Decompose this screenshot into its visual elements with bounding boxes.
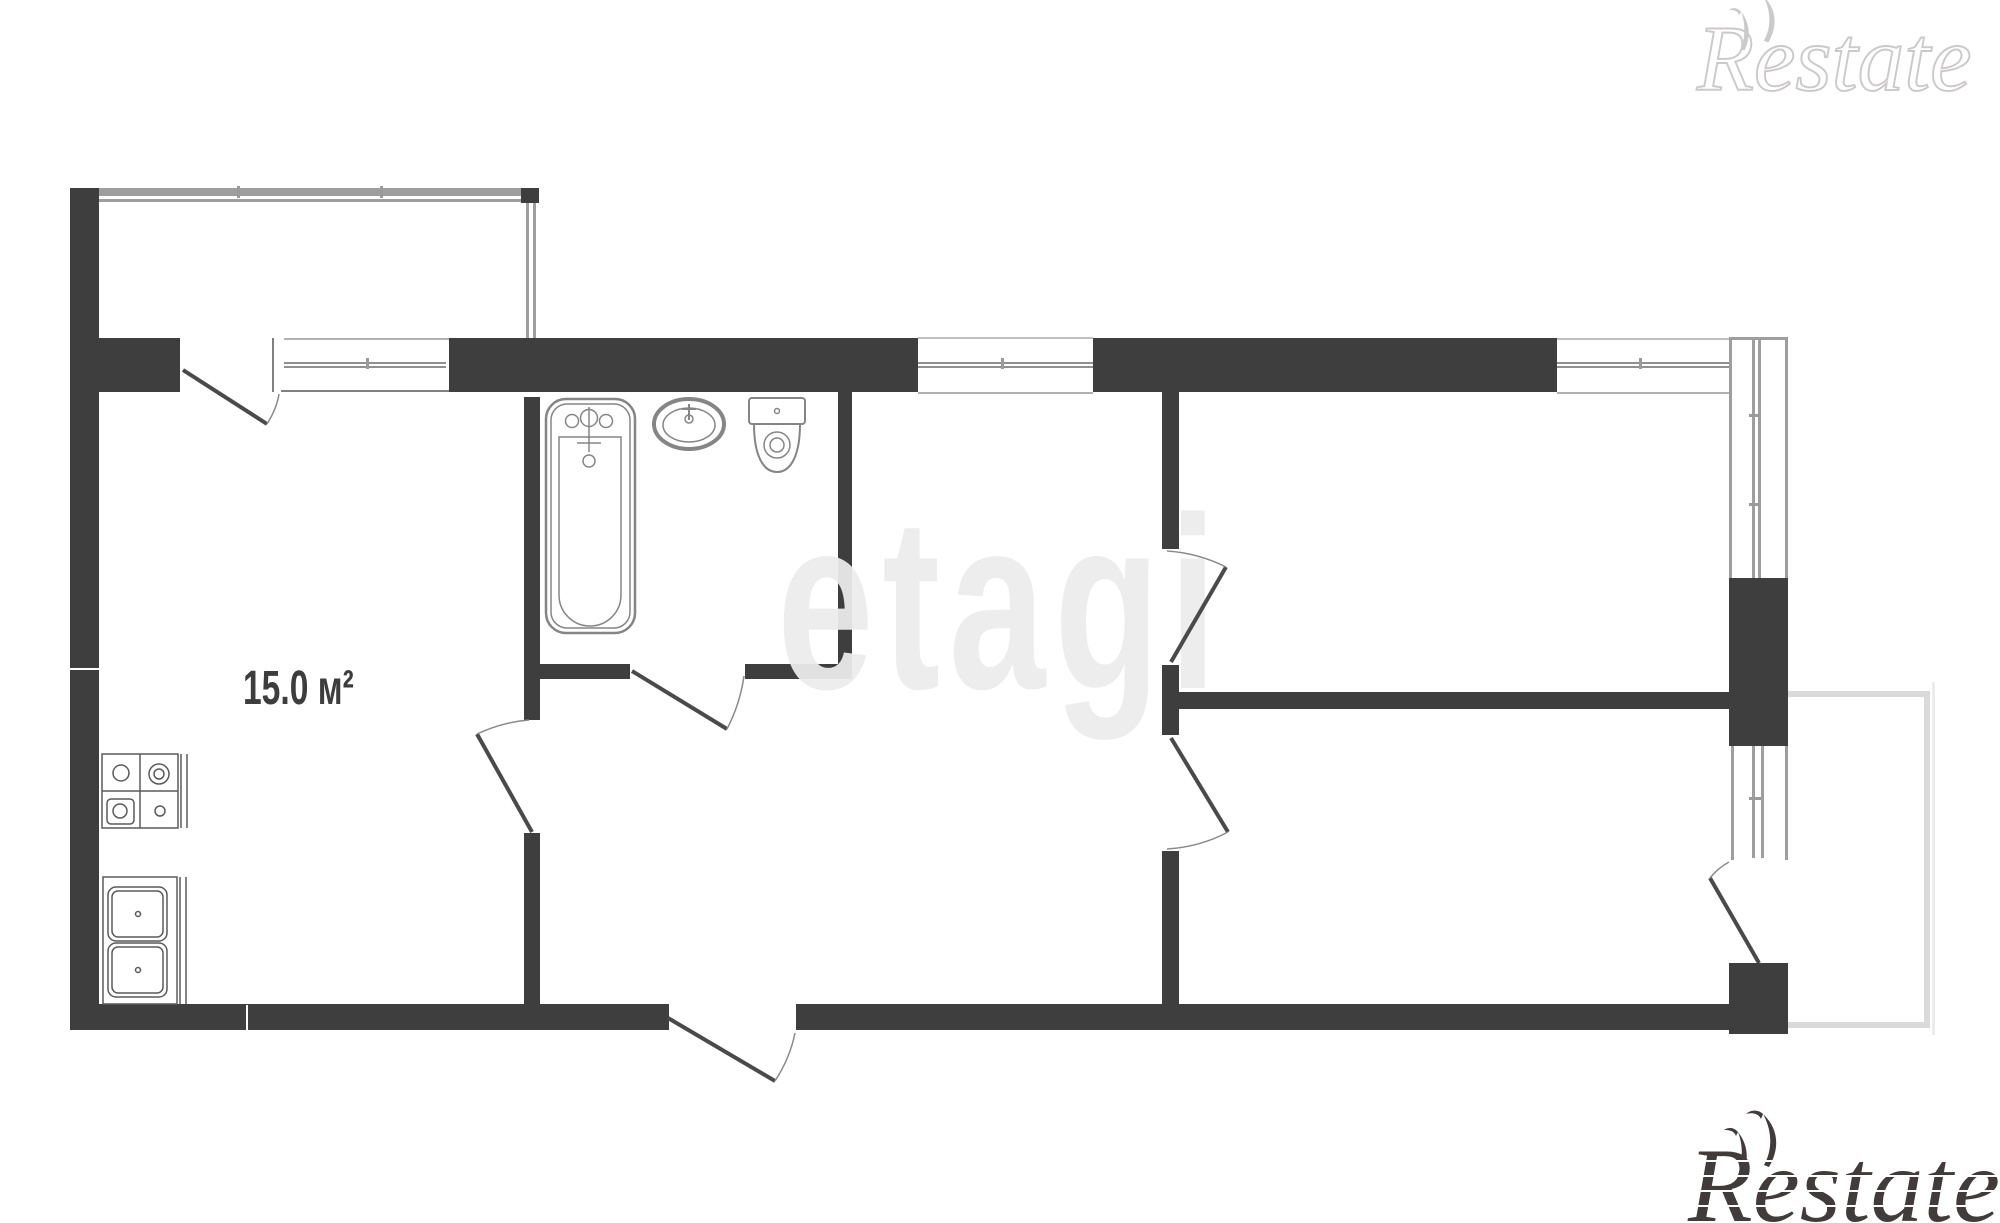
svg-text:Restate: Restate: [1696, 8, 1972, 111]
